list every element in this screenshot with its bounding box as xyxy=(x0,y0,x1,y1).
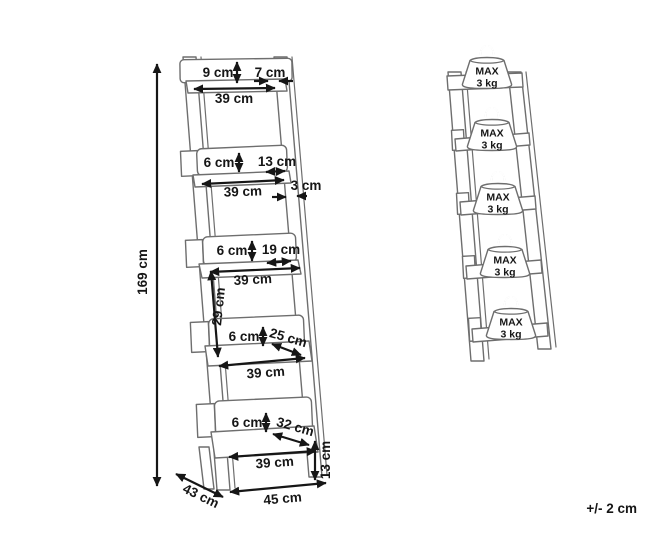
dim-label-shelf5-back: 6 cm xyxy=(232,415,263,430)
back-leg xyxy=(199,447,214,489)
max-load-line1: MAX xyxy=(493,255,516,267)
max-load-line2: 3 kg xyxy=(476,78,497,90)
ladder-max-load-view: MAX 3 kg MAX 3 kg MAX 3 kg MAX 3 kg xyxy=(447,46,556,361)
dim-arrow-top-width xyxy=(194,88,275,89)
max-load-line2: 3 kg xyxy=(494,267,515,279)
max-load-badge: MAX 3 kg xyxy=(480,235,529,279)
dim-label-shelf5-width: 39 cm xyxy=(255,454,294,472)
dim-label-shelf4-back: 6 cm xyxy=(229,329,260,344)
max-load-badge: MAX 3 kg xyxy=(473,172,522,216)
max-load-line1: MAX xyxy=(480,128,503,140)
dim-label-shelf2-width: 39 cm xyxy=(223,183,262,199)
tolerance-note: +/- 2 cm xyxy=(586,501,637,516)
max-load-badge: MAX 3 kg xyxy=(467,108,516,152)
dim-label-overall-height: 169 cm xyxy=(135,249,150,295)
max-load-line1: MAX xyxy=(486,192,509,204)
max-load-line1: MAX xyxy=(475,66,498,78)
dim-label-base-width: 45 cm xyxy=(263,489,302,507)
dim-label-shelf3-back: 6 cm xyxy=(217,243,248,258)
max-load-badge: MAX 3 kg xyxy=(486,297,535,341)
ladder-shelf-dimension-diagram: 169 cm 9 cm 7 cm 39 cm 6 cm 13 cm 39 cm … xyxy=(0,0,650,551)
dim-label-shelf3-width: 39 cm xyxy=(233,271,272,288)
max-load-badge: MAX 3 kg xyxy=(462,46,511,90)
max-load-line1: MAX xyxy=(499,317,522,329)
diagram-canvas: 169 cm 9 cm 7 cm 39 cm 6 cm 13 cm 39 cm … xyxy=(0,0,650,551)
max-load-line2: 3 kg xyxy=(487,204,508,216)
dim-label-shelf3-depth: 19 cm xyxy=(262,242,300,257)
dim-label-shelf2-depth: 13 cm xyxy=(258,154,296,169)
max-load-line2: 3 kg xyxy=(500,329,521,341)
dim-label-top-width: 39 cm xyxy=(215,91,253,106)
dim-label-shelf4-width: 39 cm xyxy=(246,364,285,382)
dim-label-frame-thickness: 3 cm xyxy=(291,178,322,193)
dim-label-shelf2-back: 6 cm xyxy=(204,155,235,170)
dim-label-top-side-gap: 7 cm xyxy=(255,65,286,80)
dim-arrow-shelf2-depth xyxy=(266,171,285,172)
dim-label-base-height: 13 cm xyxy=(318,441,333,479)
dim-label-top-back-height: 9 cm xyxy=(203,65,234,80)
max-load-line2: 3 kg xyxy=(481,140,502,152)
